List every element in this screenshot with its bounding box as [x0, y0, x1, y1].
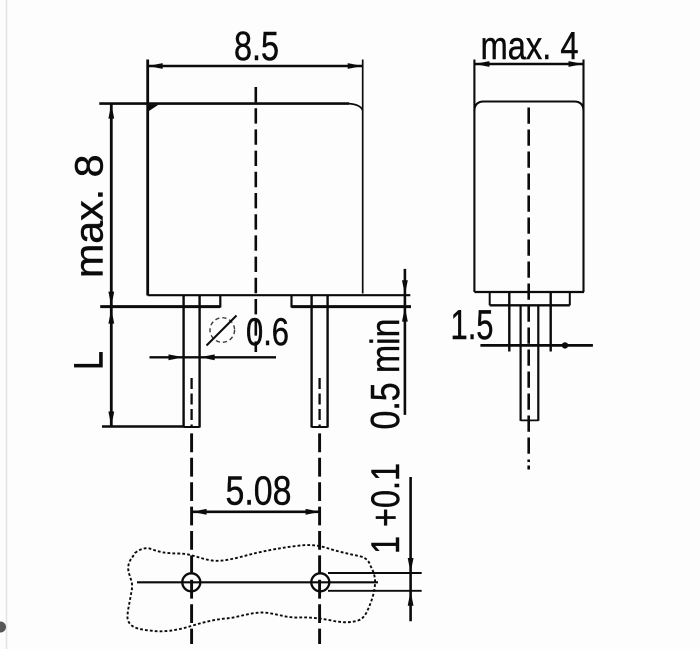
svg-text:max. 4: max. 4: [481, 25, 579, 68]
svg-text:max. 8: max. 8: [68, 155, 112, 279]
svg-text:5.08: 5.08: [226, 468, 292, 514]
svg-text:0.5 min: 0.5 min: [362, 319, 408, 430]
svg-text:L: L: [66, 351, 112, 370]
svg-text:0.6: 0.6: [246, 311, 289, 354]
svg-text:1.5: 1.5: [451, 301, 494, 348]
svg-text:1 +0.1: 1 +0.1: [364, 463, 408, 554]
svg-text:8.5: 8.5: [234, 23, 279, 69]
